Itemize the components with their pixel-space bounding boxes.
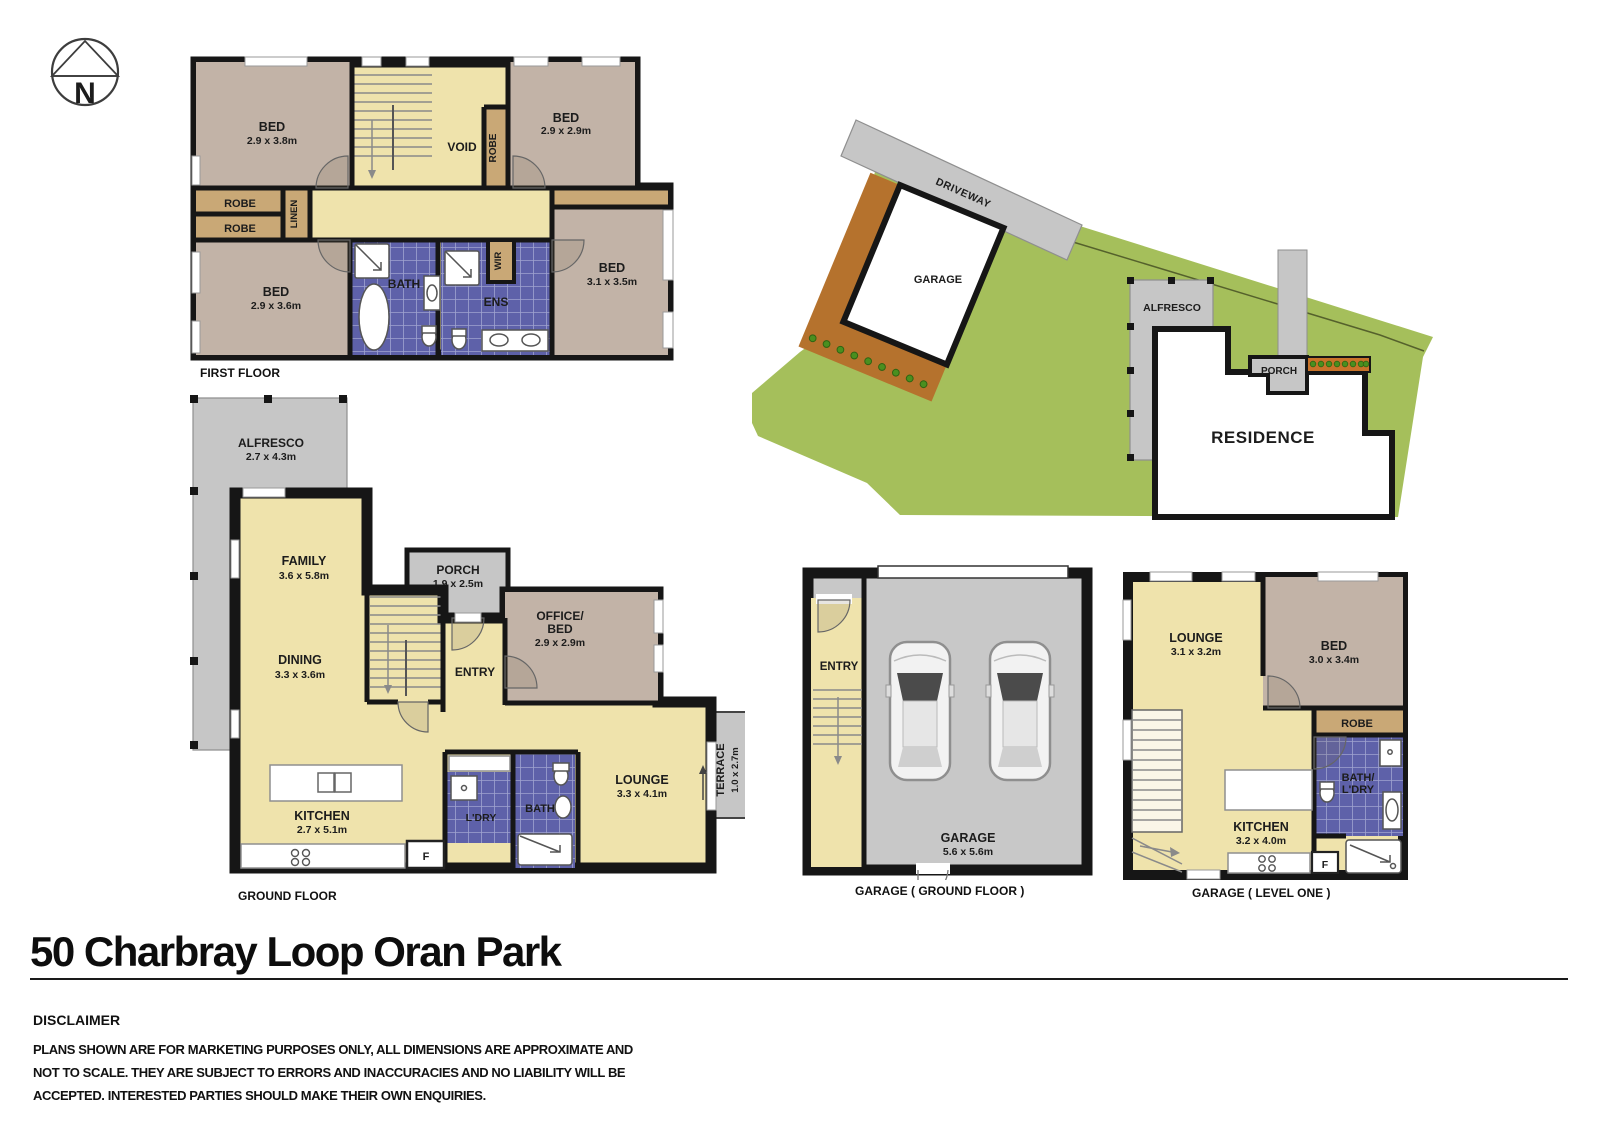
room-label: ROBE [224, 223, 256, 235]
room-dims: 2.9 x 3.6m [251, 300, 301, 312]
room-label: BATH [388, 277, 420, 291]
room-dims: 2.7 x 4.3m [246, 451, 296, 463]
disclaimer-line: ACCEPTED. INTERESTED PARTIES SHOULD MAKE… [33, 1088, 486, 1103]
room-label: BED [547, 622, 573, 636]
room-label: ENS [484, 295, 509, 309]
disclaimer-line: PLANS SHOWN ARE FOR MARKETING PURPOSES O… [33, 1042, 633, 1057]
fridge-label: F [1322, 859, 1329, 871]
room-label: BED [1321, 639, 1347, 653]
room-label: LINEN [289, 200, 300, 229]
room-label: BED [259, 120, 285, 134]
room-dims: 3.0 x 3.4m [1309, 654, 1359, 666]
room-label: L'DRY [466, 812, 497, 824]
garage-ground-floor-label: GARAGE ( GROUND FLOOR ) [855, 884, 1024, 898]
page-title: 50 Charbray Loop Oran Park [30, 928, 561, 976]
garage-door [878, 566, 1068, 578]
room-dims: 5.6 x 5.6m [943, 846, 993, 858]
room-label: BED [599, 261, 625, 275]
room-label: ROBE [1341, 718, 1373, 730]
room-dims: 3.1 x 3.2m [1171, 646, 1221, 658]
room-label: GARAGE [941, 831, 996, 845]
room-label: PORCH [436, 563, 479, 577]
room-label: ENTRY [820, 661, 859, 673]
room-dims: 2.9 x 3.8m [247, 135, 297, 147]
floorplan-sheet: N [0, 0, 1600, 1121]
site-residence-label: RESIDENCE [1211, 428, 1315, 447]
room-label: TERRACE [715, 743, 727, 796]
room-dims: 2.9 x 2.9m [535, 637, 585, 649]
room-label: WIR [493, 252, 504, 271]
fridge-label: F [423, 851, 430, 863]
room-dims: 3.2 x 4.0m [1236, 835, 1286, 847]
title-underline [30, 978, 1568, 980]
garage-level-one-label: GARAGE ( LEVEL ONE ) [1192, 886, 1330, 900]
site-path [1278, 250, 1307, 357]
disclaimer-line: NOT TO SCALE. THEY ARE SUBJECT TO ERRORS… [33, 1065, 625, 1080]
room-label: DINING [278, 653, 322, 667]
site-alfresco-label: ALFRESCO [1143, 302, 1201, 314]
room-label: ALFRESCO [238, 436, 304, 450]
room-label: LOUNGE [615, 773, 668, 787]
garage-ground-floor-plan: ENTRY GARAGE 5.6 x 5.6m [800, 560, 1095, 880]
compass: N [46, 34, 124, 114]
compass-north-letter: N [74, 77, 96, 110]
room-dims: 1.0 x 2.7m [730, 747, 741, 792]
planter-plants-icon [1310, 361, 1369, 367]
room-label: BATH [525, 803, 555, 815]
first-floor-plan: BED 2.9 x 3.8m BED 2.9 x 2.9m VOID ROBE … [190, 56, 682, 368]
room-label: OFFICE/ [536, 609, 584, 623]
room-dims: 3.6 x 5.8m [279, 570, 329, 582]
room-label: VOID [447, 140, 477, 154]
room-dims: 2.9 x 2.9m [541, 125, 591, 137]
garage-level-one-plan: F LOUNGE 3.1 x 3.2m BED 3.0 x 3.4m ROBE … [1118, 565, 1410, 883]
bedroom-4-robe [552, 188, 668, 207]
room-dims: 3.1 x 3.5m [587, 276, 637, 288]
room-label: BATH/ [1342, 772, 1375, 784]
ground-floor-label: GROUND FLOOR [238, 889, 337, 903]
room-label: KITCHEN [1233, 820, 1289, 834]
room-label: LOUNGE [1169, 631, 1222, 645]
room-label: ROBE [224, 198, 256, 210]
room-label: FAMILY [282, 554, 327, 568]
room-dims: 3.3 x 4.1m [617, 788, 667, 800]
site-garage-label: GARAGE [914, 274, 962, 286]
room-dims: 3.3 x 3.6m [275, 669, 325, 681]
room-label: ROBE [488, 133, 499, 162]
room-label: BED [263, 285, 289, 299]
room-label: KITCHEN [294, 809, 350, 823]
site-plan: DRIVEWAY GARAGE ALFRESCO PORCH [740, 100, 1440, 530]
room-label: L'DRY [1342, 784, 1375, 796]
room-label: BED [553, 111, 579, 125]
ground-floor-plan: ALFRESCO 2.7 x 4.3m TERRACE 1.0 x 2.7m P… [185, 390, 745, 880]
room-label: ENTRY [455, 665, 495, 679]
site-porch-label: PORCH [1261, 366, 1297, 377]
stairs [1132, 710, 1182, 832]
first-floor-label: FIRST FLOOR [200, 366, 280, 380]
room-dims: 2.7 x 5.1m [297, 824, 347, 836]
disclaimer-heading: DISCLAIMER [33, 1012, 120, 1028]
